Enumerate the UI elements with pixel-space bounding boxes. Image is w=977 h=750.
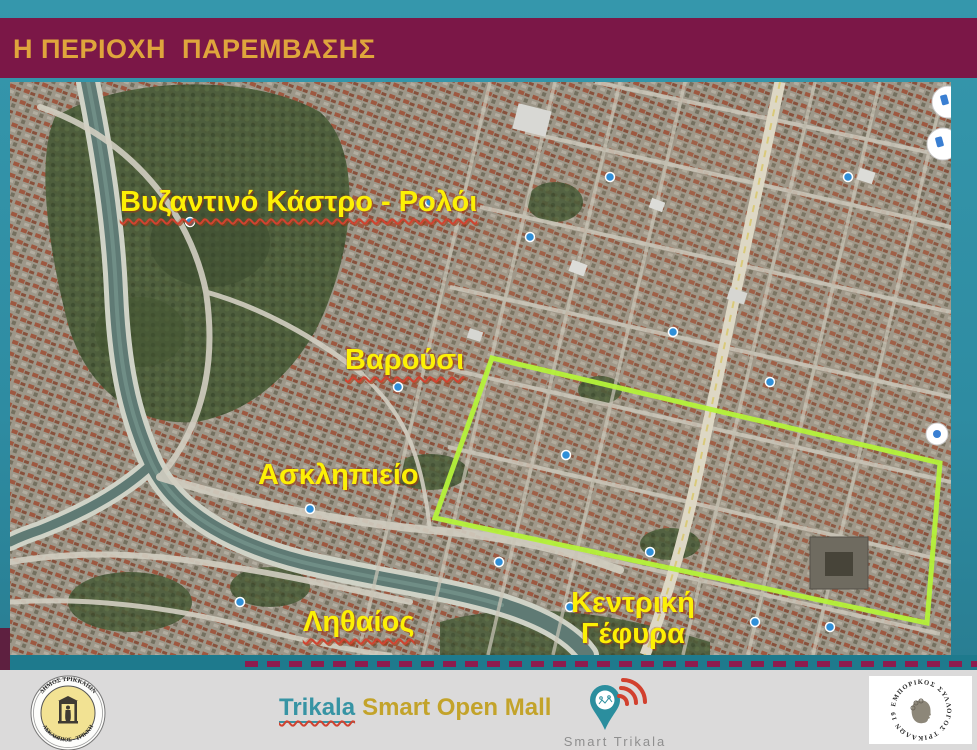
brand-rest: Smart Open Mall — [362, 694, 551, 721]
commerce-seal-icon: ΕΜΠΟΡΙΚΟΣ ΣΥΛΛΟΓΟΣ ΤΡΙΚΑΛΩΝ 1908 — [890, 679, 952, 741]
brand-wordmark: TrikalaSmart Open Mall — [279, 694, 551, 722]
footer: ΔΗΜΟΣ ΤΡΙΚΚΑΙΩΝ ΑΣΚΛΗΠΙΟΣ - ΤΡΙΚΚΗ Trika… — [0, 670, 977, 750]
title-bar: Η ΠΕΡΙΟΧΗ ΠΑΡΕΜΒΑΣΗΣ — [0, 18, 977, 78]
corner-accent — [0, 628, 10, 670]
label-asklipieio: Ασκληπιείο — [258, 459, 419, 492]
label-central-bridge-line2: Γέφυρα — [581, 618, 685, 650]
presentation-slide: Η ΠΕΡΙΟΧΗ ΠΑΡΕΜΒΑΣΗΣ — [0, 0, 977, 750]
smart-trikala-logo: Smart Trikala — [553, 672, 677, 749]
dashed-divider — [245, 661, 977, 667]
map-pin-wifi-icon — [579, 672, 651, 732]
label-central-bridge-line1: Κεντρική — [571, 587, 695, 619]
classical-head-icon — [911, 699, 931, 723]
label-central-bridge: Κεντρική Γέφυρα — [558, 588, 708, 650]
smart-trikala-caption: Smart Trikala — [553, 734, 677, 749]
commerce-seal-box: ΕΜΠΟΡΙΚΟΣ ΣΥΛΛΟΓΟΣ ΤΡΙΚΑΛΩΝ 1908 — [869, 676, 972, 744]
brand-city: Trikala — [279, 694, 355, 723]
satellite-map: Βυζαντινό Κάστρο - Ρολόι Βαρούσι Ασκληπι… — [10, 82, 951, 655]
page-title: Η ΠΕΡΙΟΧΗ ΠΑΡΕΜΒΑΣΗΣ — [13, 18, 375, 80]
municipal-seal-icon: ΔΗΜΟΣ ΤΡΙΚΚΑΙΩΝ ΑΣΚΛΗΠΙΟΣ - ΤΡΙΚΚΗ — [30, 675, 106, 750]
label-varousi: Βαρούσι — [345, 344, 464, 377]
label-byzantine-castle: Βυζαντινό Κάστρο - Ρολόι — [120, 186, 477, 219]
wifi-arcs-icon — [619, 680, 645, 704]
label-lithaios: Ληθαίος — [303, 606, 414, 639]
map-art — [10, 82, 951, 655]
